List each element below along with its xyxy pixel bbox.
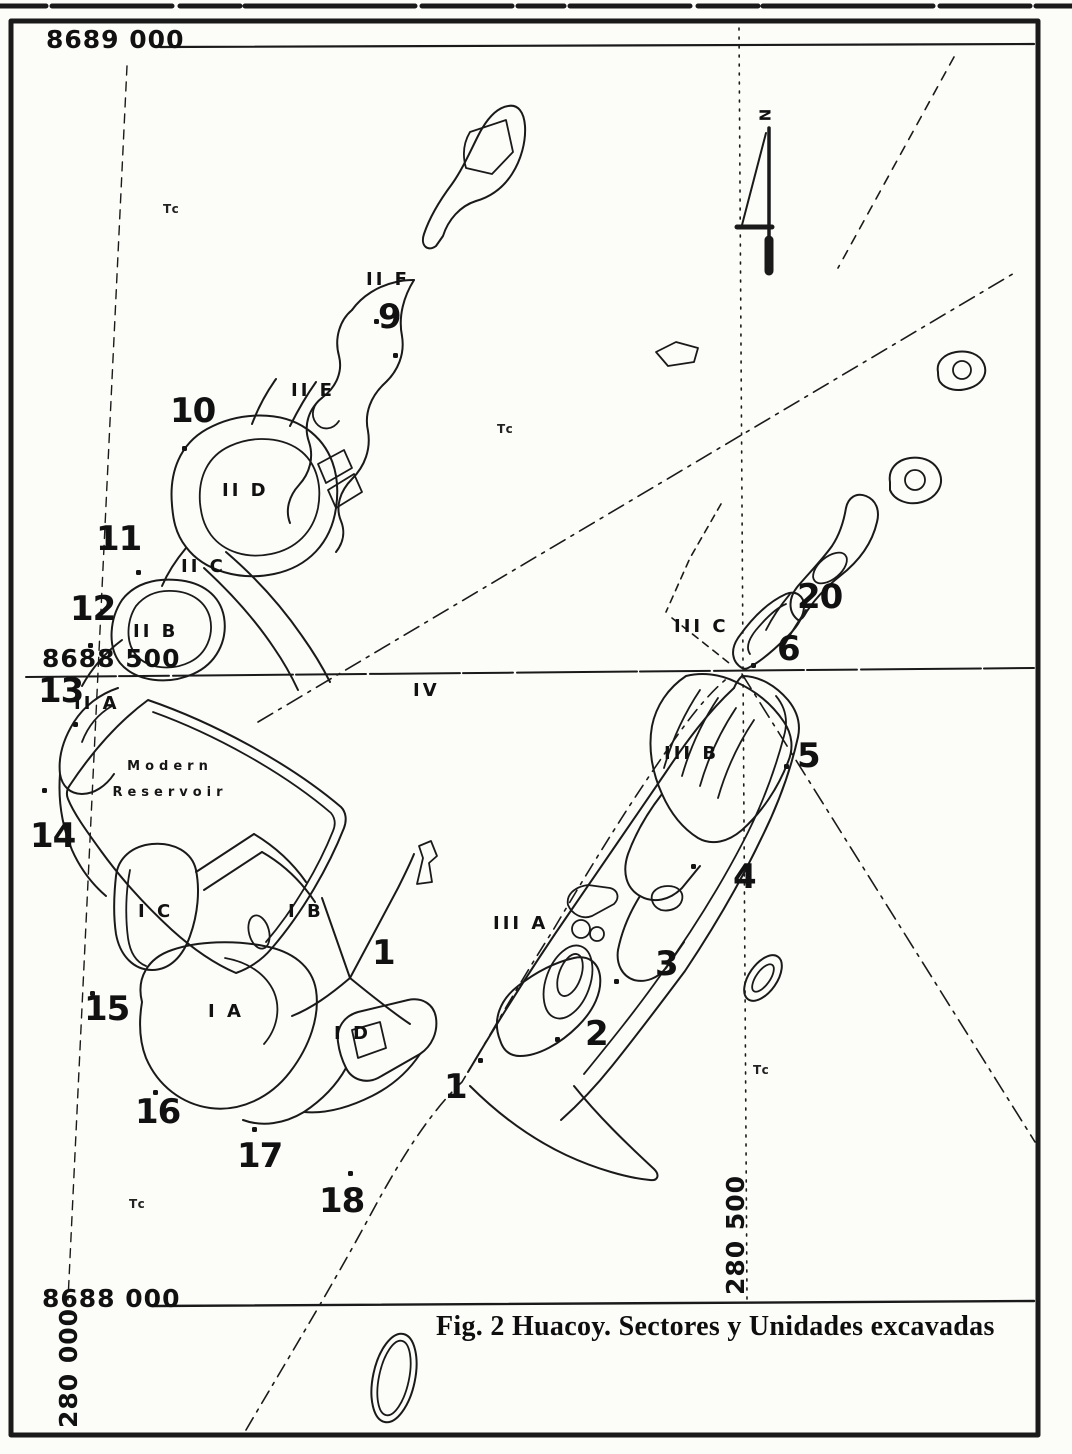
grid-line-8688000 [152, 1301, 1034, 1306]
map-linework [0, 0, 1072, 1454]
unit-number: 3 [655, 947, 678, 981]
north-arrow-label: N [755, 109, 773, 122]
survey-dash-lines [246, 57, 1035, 1430]
terrain-label: Tc [497, 423, 515, 435]
unit-number: 18 [319, 1184, 364, 1218]
unit-location-dot [374, 319, 379, 324]
map-figure: 9101112131415161718112345620 II FII EII … [0, 0, 1072, 1454]
northing-coordinate-label: 8688 500 [42, 646, 180, 671]
sector-label: II F [366, 271, 410, 289]
unit-number: 16 [135, 1095, 180, 1129]
unit-location-dot [153, 1090, 158, 1095]
sector-label: II D [222, 482, 269, 500]
small-box-structure [656, 342, 698, 366]
unit-location-dot [691, 864, 696, 869]
unit-number: 1 [444, 1070, 467, 1104]
unit-location-dot [182, 446, 187, 451]
unit-number: 6 [777, 632, 800, 666]
reservoir-label-line1: Modern [100, 754, 240, 780]
sector-label: II E [291, 382, 335, 400]
sector-label: II B [133, 623, 178, 641]
unit-location-dot [252, 1127, 257, 1132]
sector-label: III A [493, 915, 548, 933]
unit-location-dot [555, 1037, 560, 1042]
unit-number: 1 [372, 936, 395, 970]
unit-number: 14 [30, 819, 75, 853]
unit-location-dot [42, 788, 47, 793]
frame-border [0, 6, 1072, 1435]
terrain-label: Tc [129, 1198, 147, 1210]
unit-location-dot [614, 979, 619, 984]
unit-location-dot [393, 353, 398, 358]
unit-number: 5 [797, 739, 820, 773]
reservoir-label-line2: Reservoir [100, 780, 240, 806]
sector-label: III B [664, 745, 719, 763]
unit-location-dot [784, 764, 789, 769]
unit-number: 17 [237, 1139, 282, 1173]
unit-number: 20 [797, 580, 842, 614]
sector-label: I C [138, 903, 173, 921]
isolated-structures [364, 352, 985, 1427]
northing-coordinate-label: 8689 000 [46, 27, 184, 52]
unit-location-dot [348, 1171, 353, 1176]
unit-location-dot [751, 663, 756, 668]
unit-location-dot [73, 722, 78, 727]
unit-location-dot [136, 570, 141, 575]
unit-number: 11 [96, 522, 141, 556]
unit-number: 2 [585, 1017, 608, 1051]
unit-location-dot [90, 991, 95, 996]
easting-coordinate-label: 280 000 [56, 1308, 81, 1428]
reservoir-outline [67, 700, 346, 973]
unit-number: 12 [70, 592, 115, 626]
unit-number: 9 [378, 300, 401, 334]
unit-number: 4 [733, 860, 756, 894]
sector-label: III C [674, 618, 729, 636]
grid-line-8689000 [160, 44, 1034, 47]
reservoir-label: Modern Reservoir [100, 754, 240, 806]
sector-label: II A [74, 695, 120, 713]
unit-location-dot [478, 1058, 483, 1063]
sector-label: I A [208, 1003, 244, 1021]
sector-label: I D [334, 1025, 371, 1043]
north-arrow-graphic [737, 128, 772, 273]
terrain-label: Tc [163, 203, 181, 215]
small-arrow-shape [417, 841, 437, 884]
unit-number: 15 [84, 992, 129, 1026]
terrain-label: Tc [753, 1064, 771, 1076]
easting-coordinate-label: 280 500 [723, 1175, 748, 1295]
sector-label: II C [181, 558, 226, 576]
sector-label: IV [413, 682, 440, 700]
unit-number: 10 [170, 394, 215, 428]
figure-caption: Fig. 2 Huacoy. Sectores y Unidades excav… [436, 1312, 995, 1343]
sector-label: I B [288, 903, 324, 921]
